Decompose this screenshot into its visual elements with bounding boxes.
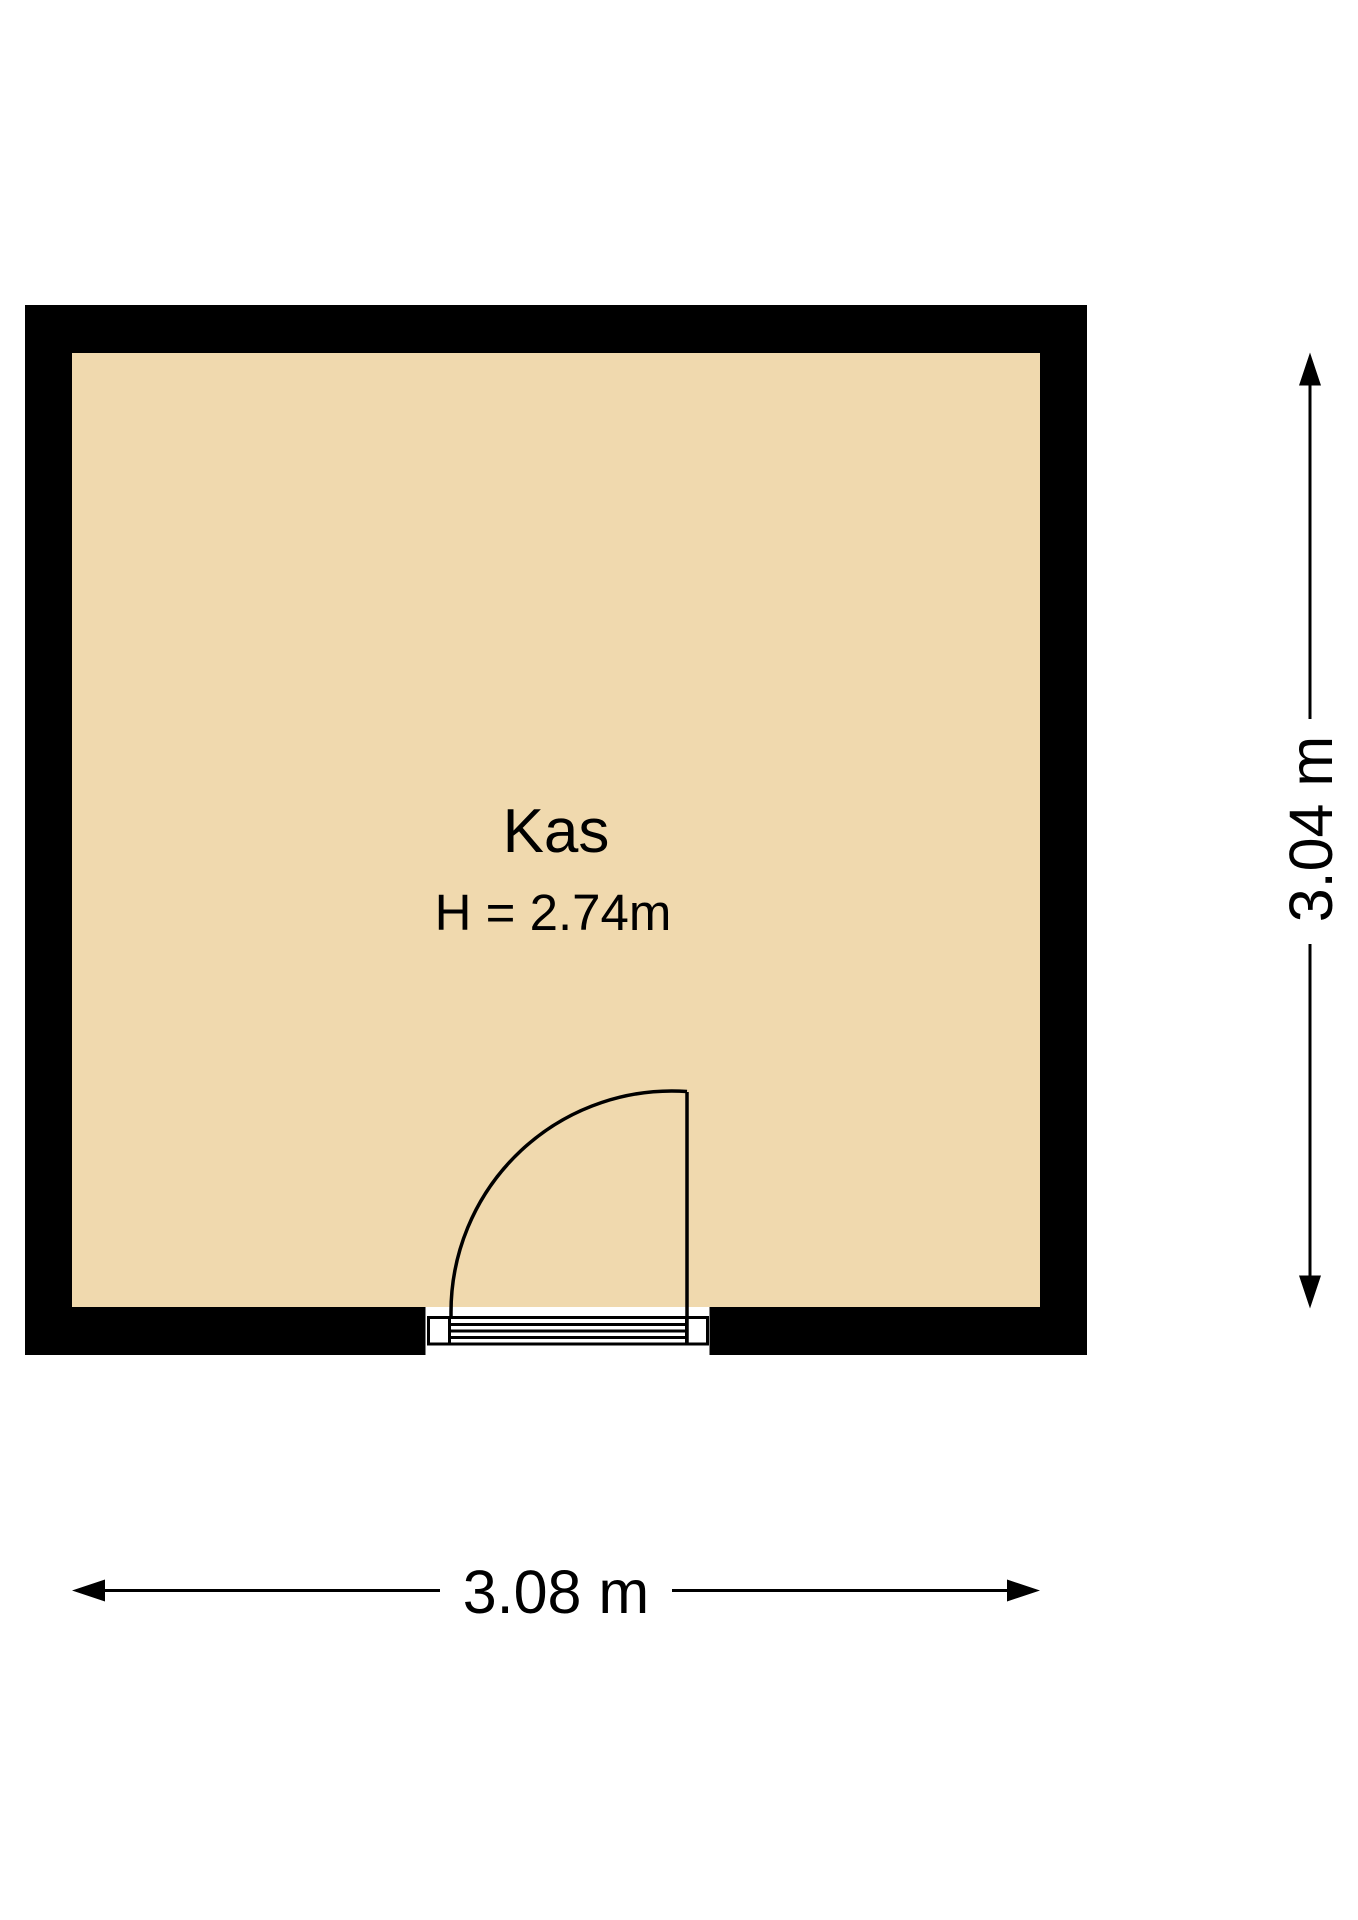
svg-text:3.08 m: 3.08 m bbox=[463, 1558, 650, 1626]
svg-text:H = 2.74m: H = 2.74m bbox=[435, 884, 672, 941]
svg-text:Kas: Kas bbox=[503, 797, 610, 866]
svg-text:3.04 m: 3.04 m bbox=[1277, 736, 1345, 923]
